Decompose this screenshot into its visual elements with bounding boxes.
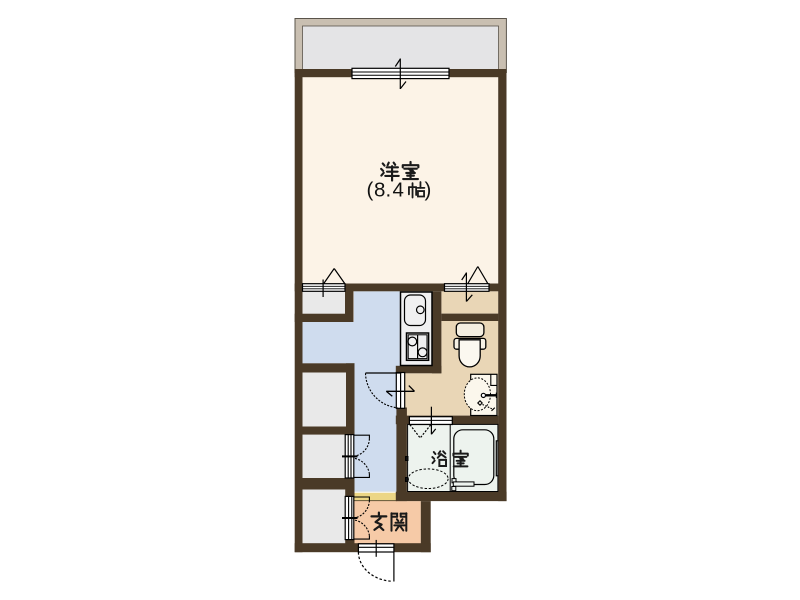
svg-text:8: 8 <box>374 179 385 202</box>
svg-text:.: . <box>386 179 392 202</box>
svg-text:): ) <box>425 179 432 202</box>
svg-text:4: 4 <box>393 179 404 202</box>
svg-text:(: ( <box>367 179 374 202</box>
